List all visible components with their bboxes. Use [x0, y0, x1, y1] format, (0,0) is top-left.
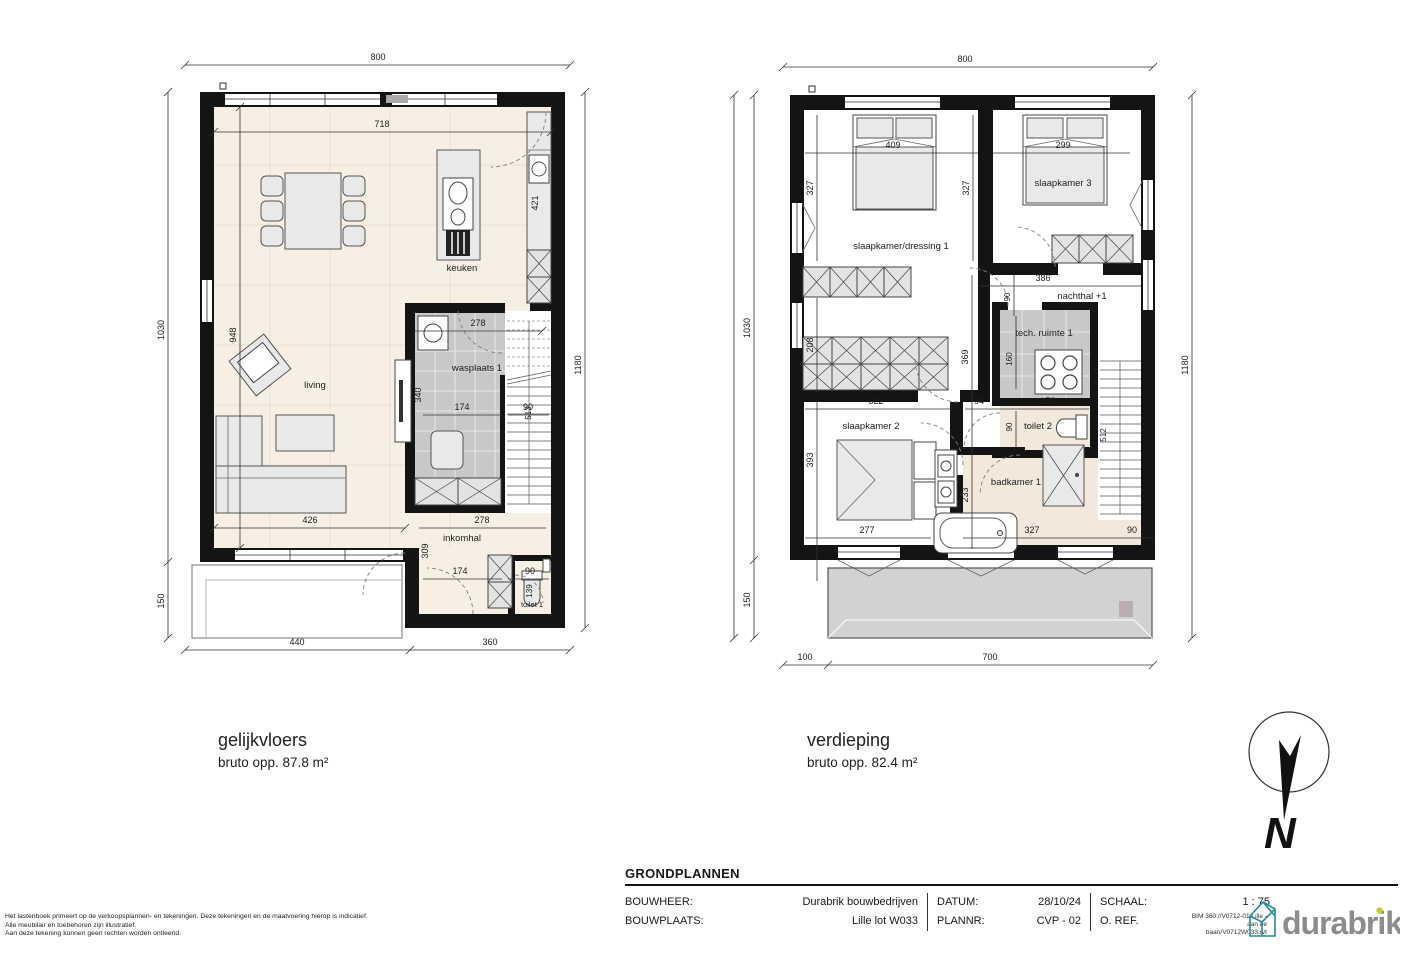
bouwheer-value: Durabrik bouwbedrijven: [740, 893, 918, 912]
bed-sk3: [1023, 115, 1107, 205]
dim-800: 800: [370, 52, 385, 62]
ground-title: gelijkvloers: [218, 730, 328, 751]
plannr-label: PLANNR:: [937, 912, 1009, 931]
upper-caption: verdieping bruto opp. 82.4 m²: [807, 730, 917, 770]
disclaimer-text: Het lastenboek primeert op de verkoopspl…: [5, 913, 368, 939]
dim-327-bottom: 327: [1024, 525, 1039, 535]
dim-340: 340: [413, 387, 423, 402]
dim-369: 369: [960, 349, 970, 364]
vent-mark: [386, 95, 408, 103]
wardrobe-sk3: [1052, 235, 1133, 263]
dim-409: 409: [885, 140, 900, 150]
kitchen-counter: [527, 112, 551, 250]
wardrobe-sk1-row: [803, 267, 911, 297]
north-arrow: N: [1238, 688, 1348, 858]
dim-150: 150: [156, 593, 166, 608]
dim-160: 160: [1005, 352, 1014, 366]
dim-1180: 1180: [573, 355, 583, 374]
room-label-inkomhal: inkomhal: [443, 533, 481, 544]
tv-cabinet: [395, 360, 411, 442]
dim-178: 178: [1040, 396, 1055, 406]
bouwplaats-value: Lille lot W033: [740, 912, 918, 931]
room-label-sk3: slaapkamer 3: [1034, 178, 1091, 189]
dim-700: 700: [982, 652, 997, 662]
dim-426: 426: [302, 515, 317, 525]
room-label-keuken: keuken: [447, 263, 478, 274]
wardrobe-understairs: [415, 478, 501, 505]
wardrobe-hall: [488, 555, 512, 608]
dim-waspl-174: 174: [454, 402, 469, 412]
durabrik-logo: durabrik: [1242, 892, 1400, 948]
disclaimer-line1: Het lastenboek primeert op de verkoopspl…: [5, 913, 368, 922]
dim-513: 513: [524, 406, 533, 420]
datum-label: DATUM:: [937, 893, 1009, 912]
room-label-sk1: slaapkamer/dressing 1: [853, 241, 949, 252]
sheet-title: GRONDPLANNEN: [625, 866, 1398, 881]
dim-nachthal-90: 90: [1003, 292, 1012, 301]
north-needle-icon: [1279, 735, 1301, 820]
schaal-label: SCHAAL:: [1100, 893, 1170, 912]
dim-309: 309: [420, 543, 430, 558]
bouwheer-label: BOUWHEER:: [625, 893, 740, 912]
dim-327-mid: 327: [961, 180, 971, 195]
dim-440: 440: [289, 637, 304, 647]
dim-386: 386: [1035, 273, 1050, 283]
north-label: N: [1264, 809, 1297, 858]
bed-sk1: [853, 115, 936, 210]
dim-948: 948: [228, 327, 238, 342]
logo-i-dot: [1376, 907, 1382, 913]
disclaimer-line2: Alle meubilair en toebehoren zijn illust…: [5, 922, 368, 931]
dim-512: 512: [1099, 428, 1108, 442]
upper-floor-plan: slaapkamer/dressing 1 slaapkamer 3 nacht…: [720, 35, 1220, 685]
dim-wc2-90: 90: [1005, 422, 1014, 431]
room-label-wasplaats: wasplaats 1: [451, 363, 502, 374]
drawing-sheet: living keuken wasplaats 1 inkomhal toile…: [0, 0, 1402, 958]
dryer: [431, 431, 463, 469]
ground-terrace: [192, 565, 402, 638]
dim-u1030: 1030: [742, 318, 752, 338]
dim-hall-278: 278: [474, 515, 489, 525]
room-label-living: living: [304, 380, 326, 391]
dim-299: 299: [1055, 140, 1070, 150]
bathtub: [934, 513, 1017, 553]
titleblock-divider-2: [1090, 893, 1091, 931]
dim-322: 322: [868, 396, 883, 406]
durabrik-house-icon: [1250, 902, 1275, 936]
room-label-badkamer: badkamer 1: [991, 477, 1041, 488]
kitchen-island: [437, 150, 480, 260]
dim-208: 208: [805, 337, 815, 352]
plannr-value: CVP - 02: [1009, 912, 1081, 931]
room-label-sk2: slaapkamer 2: [842, 421, 899, 432]
title-rule: [625, 884, 1398, 886]
ground-floor-plan: living keuken wasplaats 1 inkomhal toile…: [140, 35, 610, 685]
dim-277: 277: [859, 525, 874, 535]
datum-value: 28/10/24: [1009, 893, 1081, 912]
dim-u150: 150: [742, 592, 752, 607]
upper-area: bruto opp. 82.4 m²: [807, 755, 917, 770]
kitchen-tall-cabinet: [527, 250, 551, 303]
dim-421: 421: [530, 195, 540, 210]
dim-wc-90: 90: [525, 566, 535, 576]
upper-title: verdieping: [807, 730, 917, 751]
dim-139: 139: [525, 584, 534, 598]
dim-718: 718: [374, 119, 389, 129]
dim-hall-174: 174: [452, 566, 467, 576]
washing-machine: [418, 316, 448, 350]
room-label-tech: tech. ruimte 1: [1015, 328, 1073, 339]
coffee-table: [276, 415, 334, 451]
upper-terrace: [828, 568, 1152, 638]
dim-327-left: 327: [805, 180, 815, 195]
tech-appliance: [1035, 350, 1082, 394]
dining-table: [261, 173, 365, 249]
dim-1030: 1030: [156, 320, 166, 340]
double-sink: [935, 450, 957, 507]
titleblock-divider-1: [927, 893, 928, 931]
dim-100: 100: [797, 652, 812, 662]
bouwplaats-label: BOUWPLAATS:: [625, 912, 740, 931]
dim-360: 360: [482, 637, 497, 647]
room-label-toilet2: toilet 2: [1024, 421, 1052, 432]
room-label-toilet1: toilet 1: [521, 600, 543, 609]
dim-94: 94: [974, 396, 984, 406]
disclaimer-line3: Aan deze tekening kunnen geen rechten wo…: [5, 930, 368, 939]
dim-u1180: 1180: [1180, 355, 1190, 374]
dim-90-bottom: 90: [1127, 525, 1137, 535]
shower: [1043, 445, 1084, 506]
dim-waspl-278: 278: [470, 318, 485, 328]
wardrobe-dressing-band: [803, 337, 948, 390]
dim-u800: 800: [957, 54, 972, 64]
ground-area: bruto opp. 87.8 m²: [218, 755, 328, 770]
dim-393: 393: [805, 452, 815, 467]
room-label-nachthal: nachthal +1: [1057, 291, 1106, 302]
dim-233: 233: [960, 487, 970, 502]
ground-caption: gelijkvloers bruto opp. 87.8 m²: [218, 730, 328, 770]
